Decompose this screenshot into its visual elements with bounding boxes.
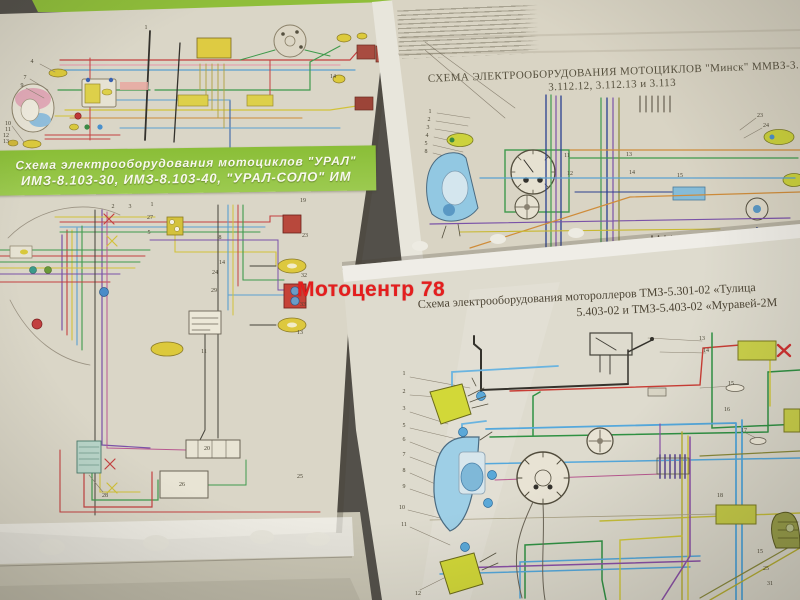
component-box — [160, 471, 208, 498]
ural-banner-line2: ИМЗ-8.103-30, ИМЗ-8.103-40, "УРАЛ-СОЛО" … — [21, 168, 352, 188]
coil — [77, 441, 101, 473]
photo-of-wiring-diagrams: Схема электрооборудования мотоциклов "УР… — [0, 0, 800, 600]
component-box — [716, 505, 756, 524]
punch-hole — [39, 539, 65, 555]
connector-block — [355, 97, 373, 110]
punch-hole — [490, 234, 506, 244]
label-block — [247, 95, 273, 106]
lamp — [764, 130, 794, 145]
lamp — [783, 174, 800, 187]
distributor — [274, 25, 306, 57]
connector-block — [357, 45, 375, 59]
relay-box — [283, 215, 301, 233]
punch-hole — [412, 241, 428, 251]
fuse — [726, 385, 744, 392]
punch-hole — [568, 228, 584, 238]
watermark: Мотоцентр 78 — [297, 278, 445, 302]
component-box — [784, 409, 800, 432]
component-box — [673, 187, 705, 200]
label-block — [178, 95, 208, 106]
punch-hole — [250, 530, 274, 544]
lamp — [23, 140, 41, 148]
fuse — [750, 438, 766, 445]
ural-sheet — [0, 2, 388, 540]
relay — [189, 311, 221, 334]
punch-hole — [306, 532, 330, 546]
ural-title-banner: Схема электрооборудования мотоциклов "УР… — [0, 145, 376, 195]
switch — [167, 217, 183, 235]
punch-hole — [143, 535, 169, 551]
parts-list-text — [397, 3, 547, 59]
generator-block — [197, 38, 231, 58]
component-box — [738, 341, 776, 360]
battery — [186, 440, 240, 458]
lamp — [151, 342, 183, 356]
